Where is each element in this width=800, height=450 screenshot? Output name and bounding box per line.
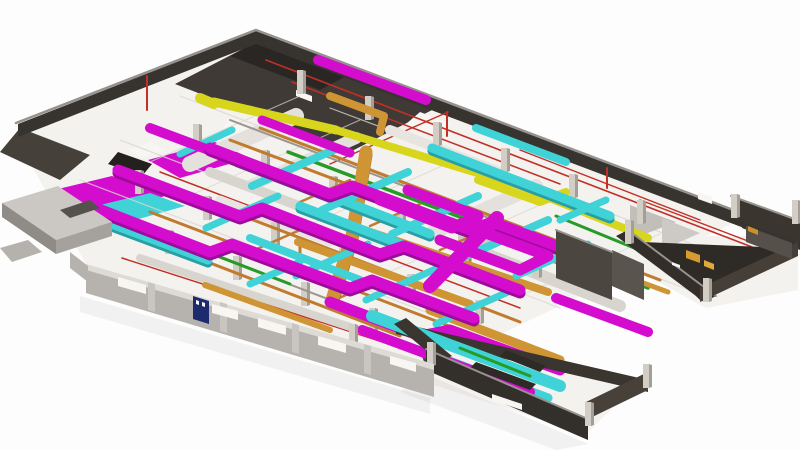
- column: [297, 70, 303, 94]
- column: [643, 200, 646, 224]
- pilaster: [364, 344, 371, 375]
- annex-column: [709, 278, 712, 302]
- wing-column: [649, 364, 652, 388]
- column: [439, 122, 442, 146]
- column: [501, 148, 507, 172]
- annex-column: [631, 220, 634, 244]
- annex-column: [737, 194, 740, 218]
- annex-column: [731, 194, 737, 218]
- annex-column: [792, 200, 798, 224]
- column: [303, 70, 306, 94]
- wing-column: [433, 342, 436, 366]
- column: [575, 174, 578, 198]
- annex-column: [625, 220, 631, 244]
- column: [637, 200, 643, 224]
- pilaster: [292, 323, 299, 354]
- model-viewport[interactable]: [0, 0, 800, 450]
- column: [233, 256, 239, 280]
- wing-column: [591, 402, 594, 426]
- pilaster: [148, 282, 155, 312]
- bim-isometric-scene: [0, 0, 800, 450]
- column: [433, 122, 439, 146]
- column: [569, 174, 575, 198]
- louver-small-piece: [0, 240, 42, 262]
- annex-column: [703, 278, 709, 302]
- column: [277, 222, 280, 246]
- column: [507, 148, 510, 172]
- wing-column: [585, 402, 591, 426]
- wing-column: [643, 364, 649, 388]
- column: [301, 282, 307, 306]
